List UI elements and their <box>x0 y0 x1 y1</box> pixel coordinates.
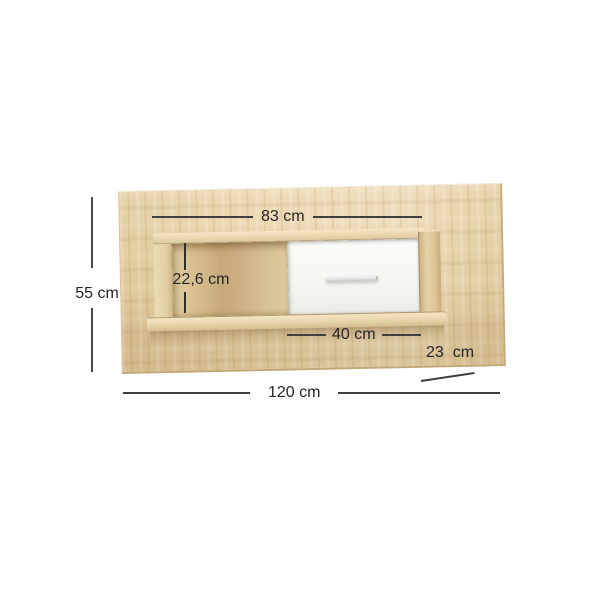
drawer-handle <box>326 276 378 282</box>
dimension-drawer-width: 40 cm <box>287 327 421 343</box>
dimension-line-left <box>123 392 250 394</box>
dimension-line-left <box>287 334 326 336</box>
dimension-line-bottom <box>184 292 186 313</box>
dimension-label-panel-height: 55 cm <box>68 285 126 303</box>
product-dimension-diagram: 83 cm 55 cm 22,6 cm 40 cm 23 cm 120 cm <box>0 0 600 600</box>
drawer-front <box>287 239 420 315</box>
dimension-label-total-width: 120 cm <box>268 384 320 402</box>
dimension-total-width: 120 cm <box>123 385 500 401</box>
dimension-line-right <box>313 216 422 218</box>
dimension-line-top <box>91 197 93 268</box>
dimension-label-depth: 23 cm <box>426 344 474 362</box>
dimension-line-bottom <box>91 308 93 372</box>
dimension-label-shelf-width: 83 cm <box>261 208 305 226</box>
dimension-label-compartment-height: 22,6 cm <box>166 271 236 289</box>
dimension-line-top <box>184 243 186 270</box>
dimension-line-right <box>382 334 421 336</box>
dimension-shelf-width: 83 cm <box>152 209 422 225</box>
dimension-label-drawer-width: 40 cm <box>332 326 376 344</box>
dimension-line-left <box>152 216 253 218</box>
dimension-compartment-height: 22,6 cm <box>166 243 236 313</box>
dimension-line-right <box>338 392 500 394</box>
shelf-right-wall <box>418 230 442 311</box>
dimension-panel-height: 55 cm <box>68 197 126 372</box>
